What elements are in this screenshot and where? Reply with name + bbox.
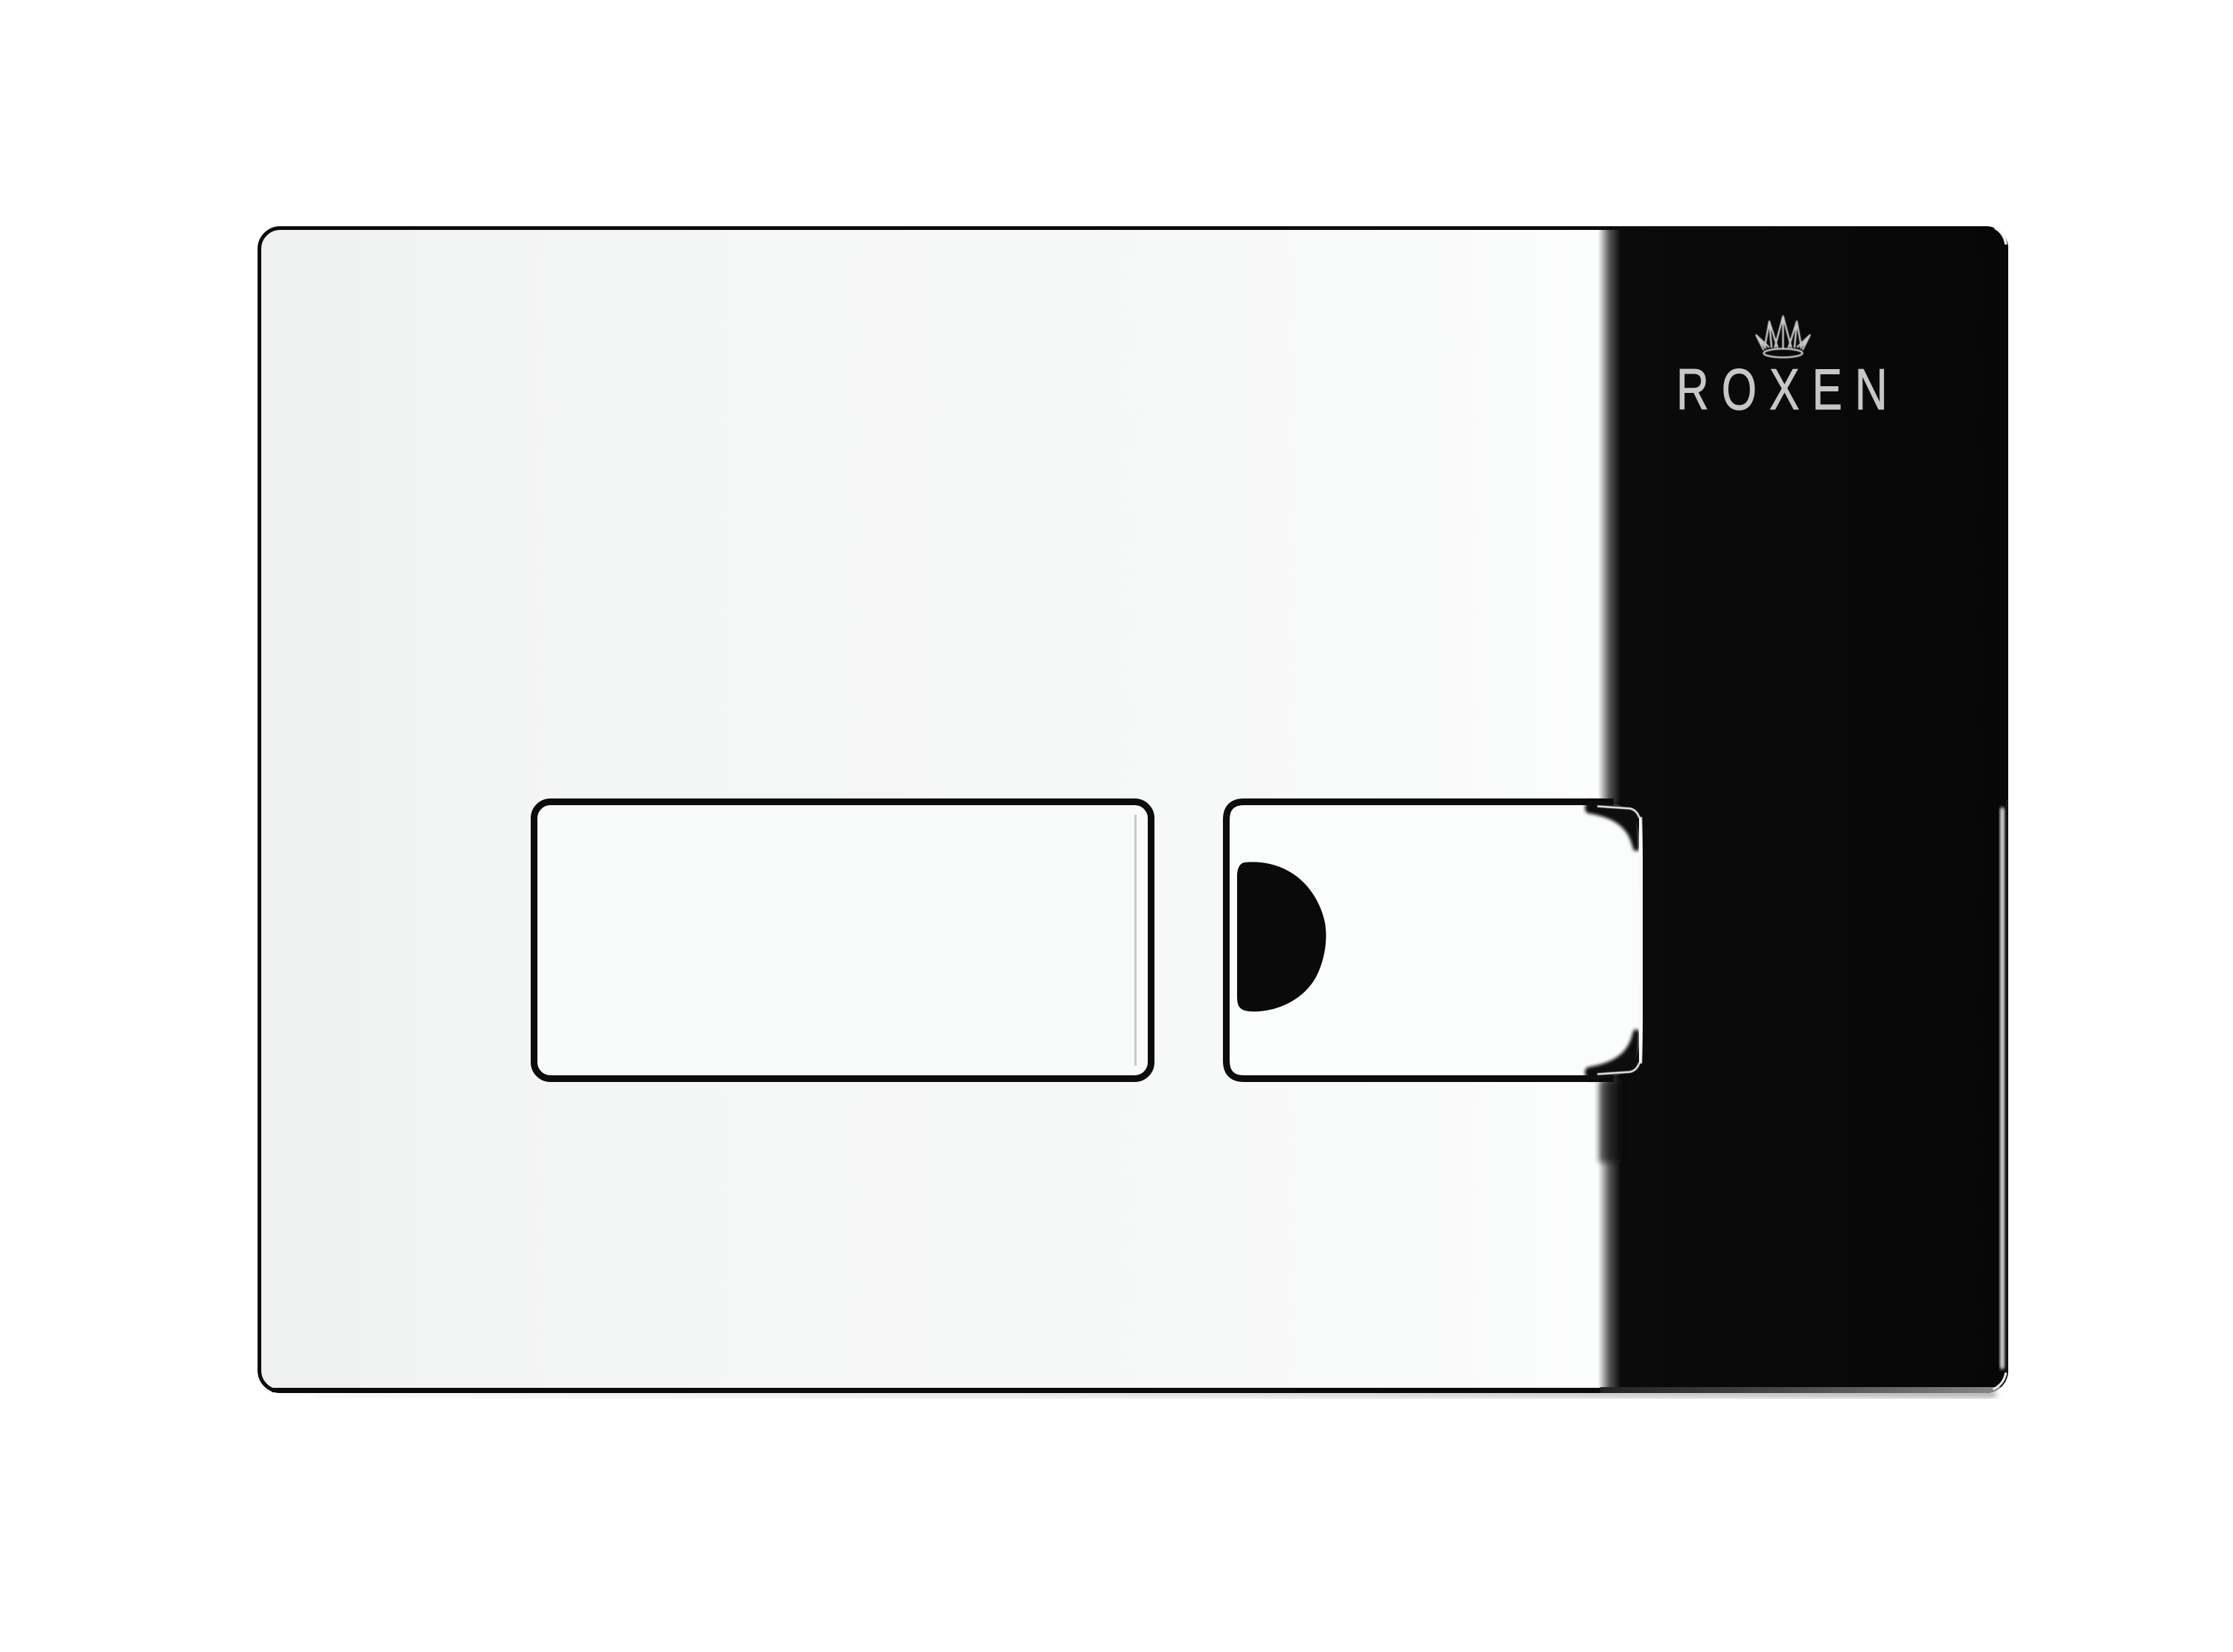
svg-text:ROXEN: ROXEN bbox=[1676, 357, 1900, 422]
